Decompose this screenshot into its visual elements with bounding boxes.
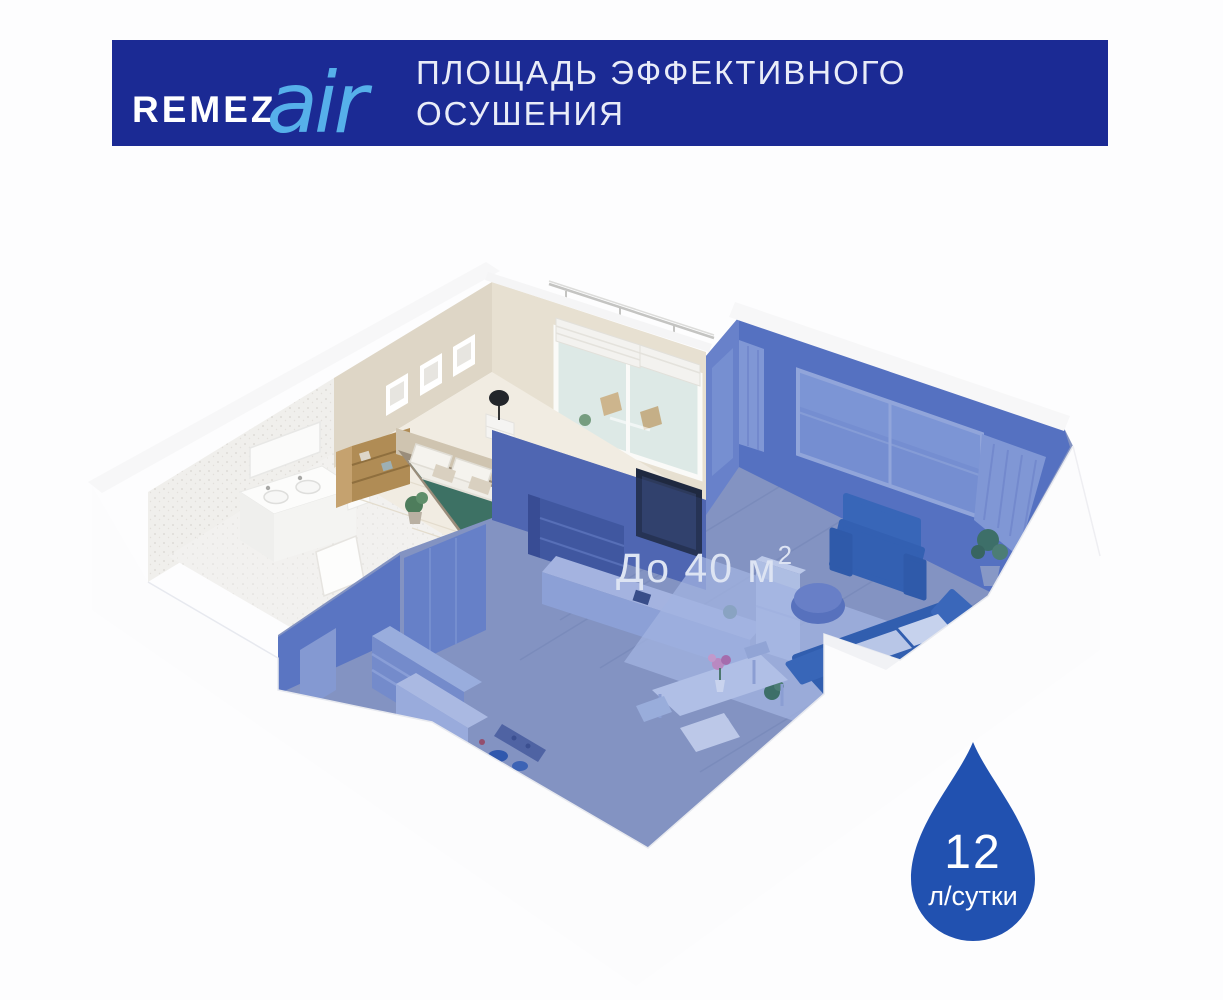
sink-left <box>264 491 288 504</box>
banner-title-line1: ПЛОЩАДЬ ЭФФЕКТИВНОГО <box>416 52 906 93</box>
banner-title-line2: ОСУШЕНИЯ <box>416 93 906 134</box>
superscript: 2 <box>778 540 792 570</box>
banner-title: ПЛОЩАДЬ ЭФФЕКТИВНОГО ОСУШЕНИЯ <box>416 52 906 134</box>
brand-name: REMEZ <box>132 91 277 128</box>
header-banner: REMEZ air ПЛОЩАДЬ ЭФФЕКТИВНОГО ОСУШЕНИЯ <box>112 40 1108 146</box>
capacity-badge: 12 л/сутки <box>903 737 1043 943</box>
sink-right <box>296 481 320 494</box>
infographic-canvas: REMEZ air ПЛОЩАДЬ ЭФФЕКТИВНОГО ОСУШЕНИЯ … <box>0 0 1223 1000</box>
brand-logo: REMEZ air <box>132 69 364 138</box>
coverage-area-label: До 40 м2 <box>616 540 792 592</box>
brand-suffix: air <box>267 69 364 138</box>
capacity-unit: л/сутки <box>903 883 1043 910</box>
capacity-value: 12 <box>903 829 1043 877</box>
